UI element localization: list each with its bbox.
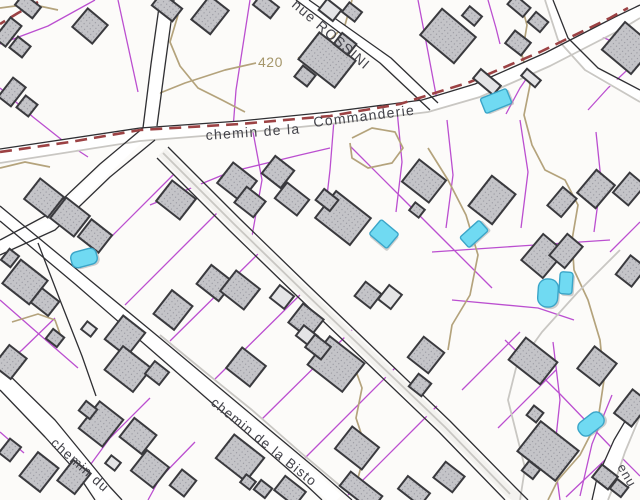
swimming-pool bbox=[559, 272, 576, 297]
elevation-420: 420 bbox=[258, 54, 283, 70]
swimming-pool bbox=[537, 278, 561, 309]
map-viewport[interactable]: chemin de laCommanderienue ROSSINI420che… bbox=[0, 0, 640, 500]
map-canvas[interactable]: chemin de laCommanderienue ROSSINI420che… bbox=[0, 0, 640, 500]
